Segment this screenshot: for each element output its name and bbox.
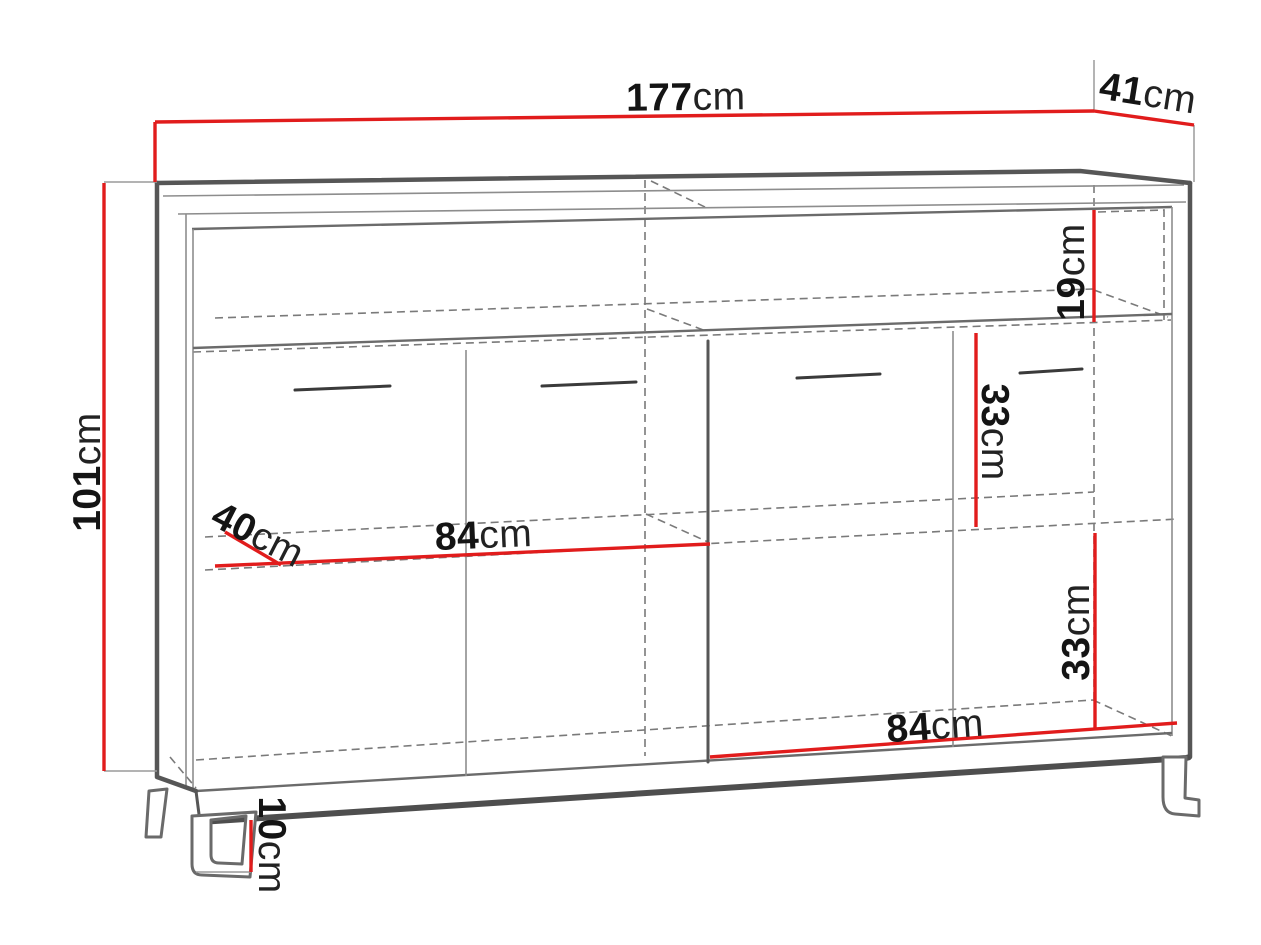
mid-center-depth-hidden-line xyxy=(646,514,708,542)
shelf-center-depth-hidden-line xyxy=(647,309,706,331)
top-shelf-label: 19cm xyxy=(1050,223,1093,320)
width-dimension-line xyxy=(155,111,1094,122)
left-inner-width-label: 84cm xyxy=(434,512,533,559)
diagram-canvas: 177cm 41cm 101cm 19cm 33cm 33cm 84cm 40c… xyxy=(0,0,1261,945)
cabinet-body xyxy=(157,171,1190,822)
door-bottom-edge xyxy=(196,733,1172,791)
lower-inner-label: 33cm xyxy=(1055,583,1098,680)
bottom-right-depth-hidden-line xyxy=(1093,700,1174,737)
door-handle-2 xyxy=(542,382,636,386)
leg-height-label: 10cm xyxy=(250,796,293,893)
opening-top-edge xyxy=(192,207,1172,229)
right-leg xyxy=(1163,757,1199,816)
door-handle-4 xyxy=(1020,369,1082,373)
width-label: 177cm xyxy=(626,75,746,119)
door-handle-1 xyxy=(295,386,390,390)
back-left-leg xyxy=(146,789,167,837)
dimension-lines xyxy=(104,111,1194,872)
left-outer-edge xyxy=(157,183,196,791)
top-shelf-front-edge xyxy=(193,314,1172,348)
top-shelf-front-hidden-line xyxy=(193,320,1171,352)
upper-inner-label: 33cm xyxy=(973,383,1016,480)
height-label: 101cm xyxy=(66,412,109,532)
top-panel-line-2 xyxy=(178,202,1186,214)
top-panel-line-1 xyxy=(163,185,1184,196)
door-handle-3 xyxy=(797,374,880,378)
plinth-bottom-edge xyxy=(200,757,1190,822)
top-center-depth-hidden-line xyxy=(651,181,707,208)
shelf-right-depth-hidden-line xyxy=(1094,290,1168,317)
right-inner-width-label: 84cm xyxy=(885,702,985,752)
hidden-edges xyxy=(170,180,1178,788)
top-shelf-back-edge-hidden-line xyxy=(215,289,1093,318)
furniture-dimension-diagram: 177cm 41cm 101cm 19cm 33cm 33cm 84cm 40c… xyxy=(0,0,1261,945)
top-front-edge xyxy=(157,171,1190,183)
